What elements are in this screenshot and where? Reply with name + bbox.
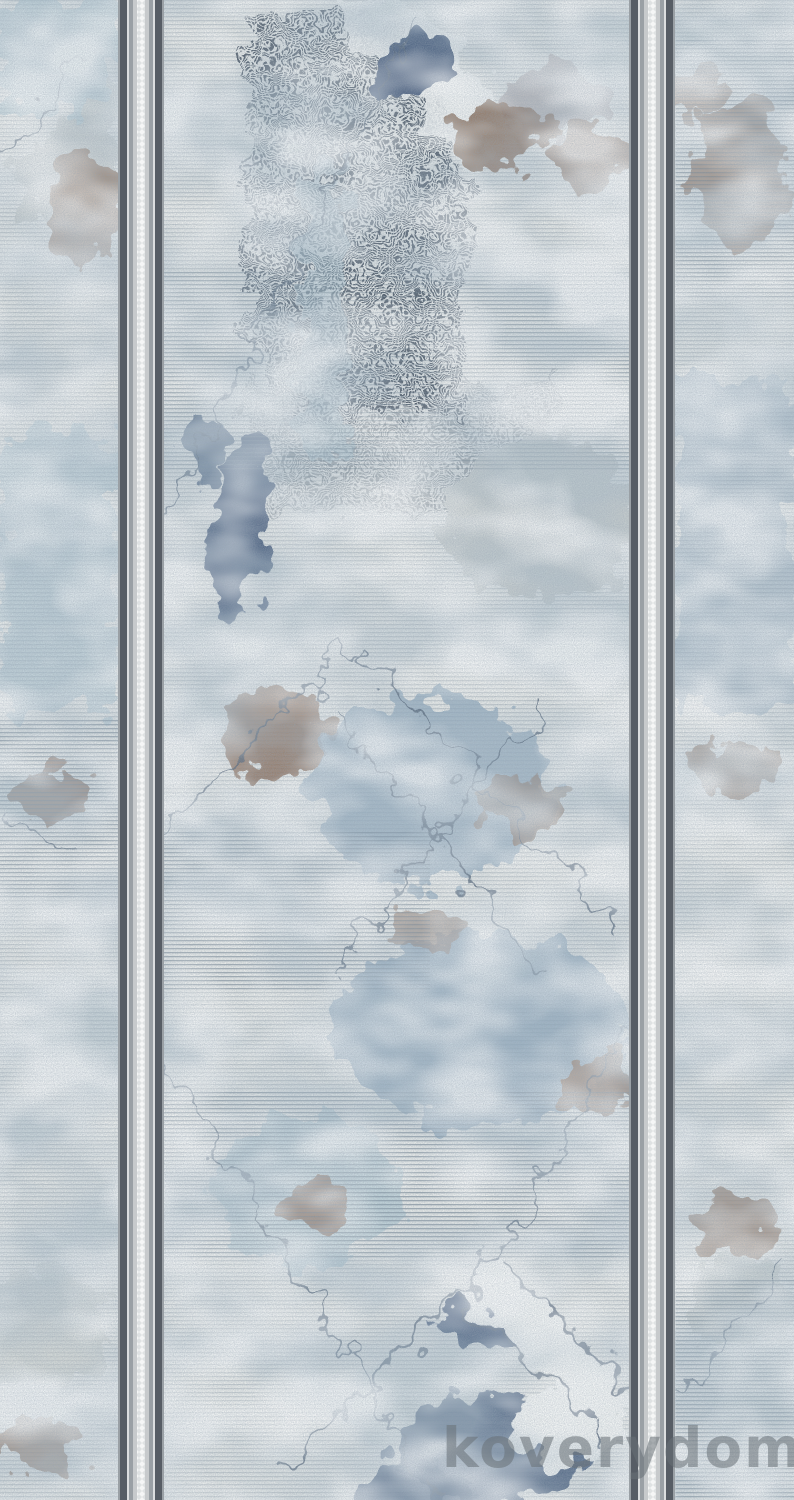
right-border-stripe-band [629, 0, 675, 1500]
carpet-photo: koverydom.ru [0, 0, 794, 1500]
carpet-art [0, 0, 794, 1500]
left-border-stripe-band [118, 0, 164, 1500]
